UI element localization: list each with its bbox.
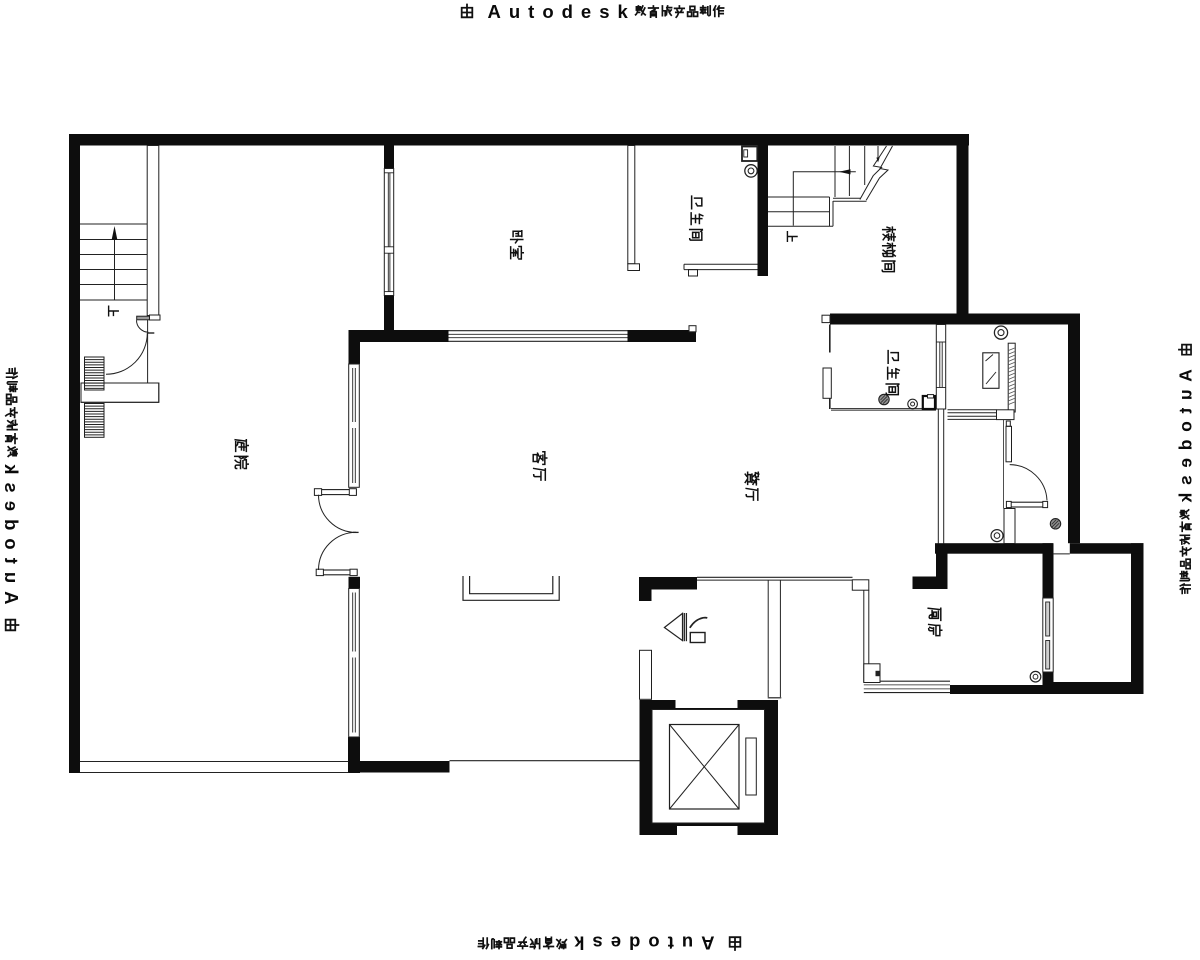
svg-text:Autodesk: Autodesk [1176,369,1196,510]
svg-text:Autodesk: Autodesk [566,933,714,954]
svg-text:Autodesk: Autodesk [488,1,636,22]
svg-text:Autodesk: Autodesk [1,456,22,604]
